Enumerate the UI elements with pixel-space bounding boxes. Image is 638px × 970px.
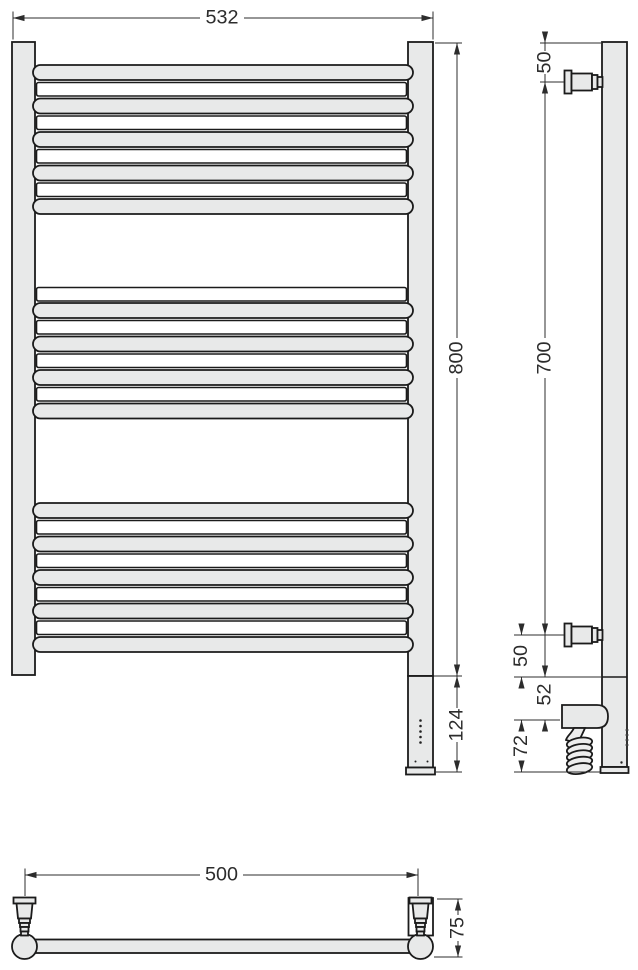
plan-post-circle-right xyxy=(408,934,433,959)
front-towel-bar xyxy=(33,503,413,518)
back-towel-bar xyxy=(37,354,407,368)
front-towel-bar xyxy=(33,637,413,652)
front-towel-bar xyxy=(33,337,413,352)
bottom-cap-side xyxy=(601,767,629,773)
wall-bracket-ring xyxy=(417,932,424,936)
side-post xyxy=(602,42,627,767)
back-towel-bar xyxy=(37,554,407,568)
wall-bracket-flange xyxy=(565,624,572,647)
bottom-cap-front xyxy=(406,768,435,775)
wall-bracket-stem xyxy=(413,904,429,919)
back-towel-bar xyxy=(37,288,407,302)
side-view xyxy=(601,42,629,773)
dimension-label-side-cable-zone: 72 xyxy=(511,735,532,757)
back-towel-bar xyxy=(37,388,407,402)
front-towel-bar xyxy=(33,166,413,181)
front-towel-bar xyxy=(33,65,413,80)
back-towel-bar xyxy=(37,321,407,335)
element-indicator-dot xyxy=(419,725,422,728)
back-towel-bar xyxy=(37,116,407,130)
dimension-label-front-height: 800 xyxy=(447,342,468,375)
wall-bracket-step xyxy=(598,630,603,640)
front-towel-bar xyxy=(33,404,413,419)
element-screw-dot xyxy=(415,761,417,763)
plan-top-bar-tube xyxy=(28,940,413,954)
back-towel-bar xyxy=(37,183,407,197)
wall-bracket-stem xyxy=(17,904,33,919)
element-indicator-dot xyxy=(419,719,422,722)
wall-bracket-step xyxy=(598,77,603,87)
element-screw-dot xyxy=(427,761,429,763)
towel-rail-drawing: 5328001245070052507250075 xyxy=(0,0,638,970)
element-screw-dot xyxy=(620,761,622,763)
dimension-label-front-width: 532 xyxy=(206,8,239,29)
element-indicator-dot xyxy=(419,736,422,739)
back-towel-bar xyxy=(37,621,407,635)
front-towel-bar xyxy=(33,132,413,147)
front-towel-bar xyxy=(33,570,413,585)
front-towel-bar xyxy=(33,604,413,619)
dimension-label-plan-depth: 75 xyxy=(448,917,469,939)
dimension-label-element-height: 124 xyxy=(447,708,468,741)
front-towel-bar xyxy=(33,199,413,214)
back-towel-bar xyxy=(37,521,407,535)
wall-bracket-stem xyxy=(572,74,593,91)
front-towel-bar xyxy=(33,370,413,385)
dimension-label-plan-mount-span: 500 xyxy=(205,865,238,886)
front-towel-bar xyxy=(33,537,413,552)
wall-bracket-side xyxy=(565,624,603,647)
dimension-label-side-bottom-offset: 50 xyxy=(511,645,532,667)
back-towel-bar xyxy=(37,150,407,164)
dimension-label-side-top-offset: 50 xyxy=(535,52,556,74)
dimension-label-side-mount-span: 700 xyxy=(535,342,556,375)
plan-view xyxy=(12,898,433,959)
plan-post-circle-left xyxy=(12,934,37,959)
wall-bracket-flange xyxy=(565,71,572,94)
wall-bracket-plan xyxy=(14,898,36,936)
wall-bracket-stem xyxy=(572,627,593,644)
side-view-dimensions: 50700525072 xyxy=(511,32,601,773)
back-towel-bar xyxy=(37,83,407,97)
technical-drawing-canvas: 5328001245070052507250075 xyxy=(0,0,638,970)
front-view xyxy=(12,42,435,775)
dimension-label-side-element-offset: 52 xyxy=(535,684,556,706)
element-indicator-dot xyxy=(419,730,422,733)
front-towel-bar xyxy=(33,303,413,318)
element-indicator-dot xyxy=(419,741,422,744)
front-towel-bar xyxy=(33,99,413,114)
wall-bracket-side xyxy=(565,71,603,94)
heating-element-housing-side xyxy=(562,705,608,728)
back-towel-bar xyxy=(37,588,407,602)
wall-bracket-ring xyxy=(21,932,28,936)
front-left-post xyxy=(12,42,35,675)
